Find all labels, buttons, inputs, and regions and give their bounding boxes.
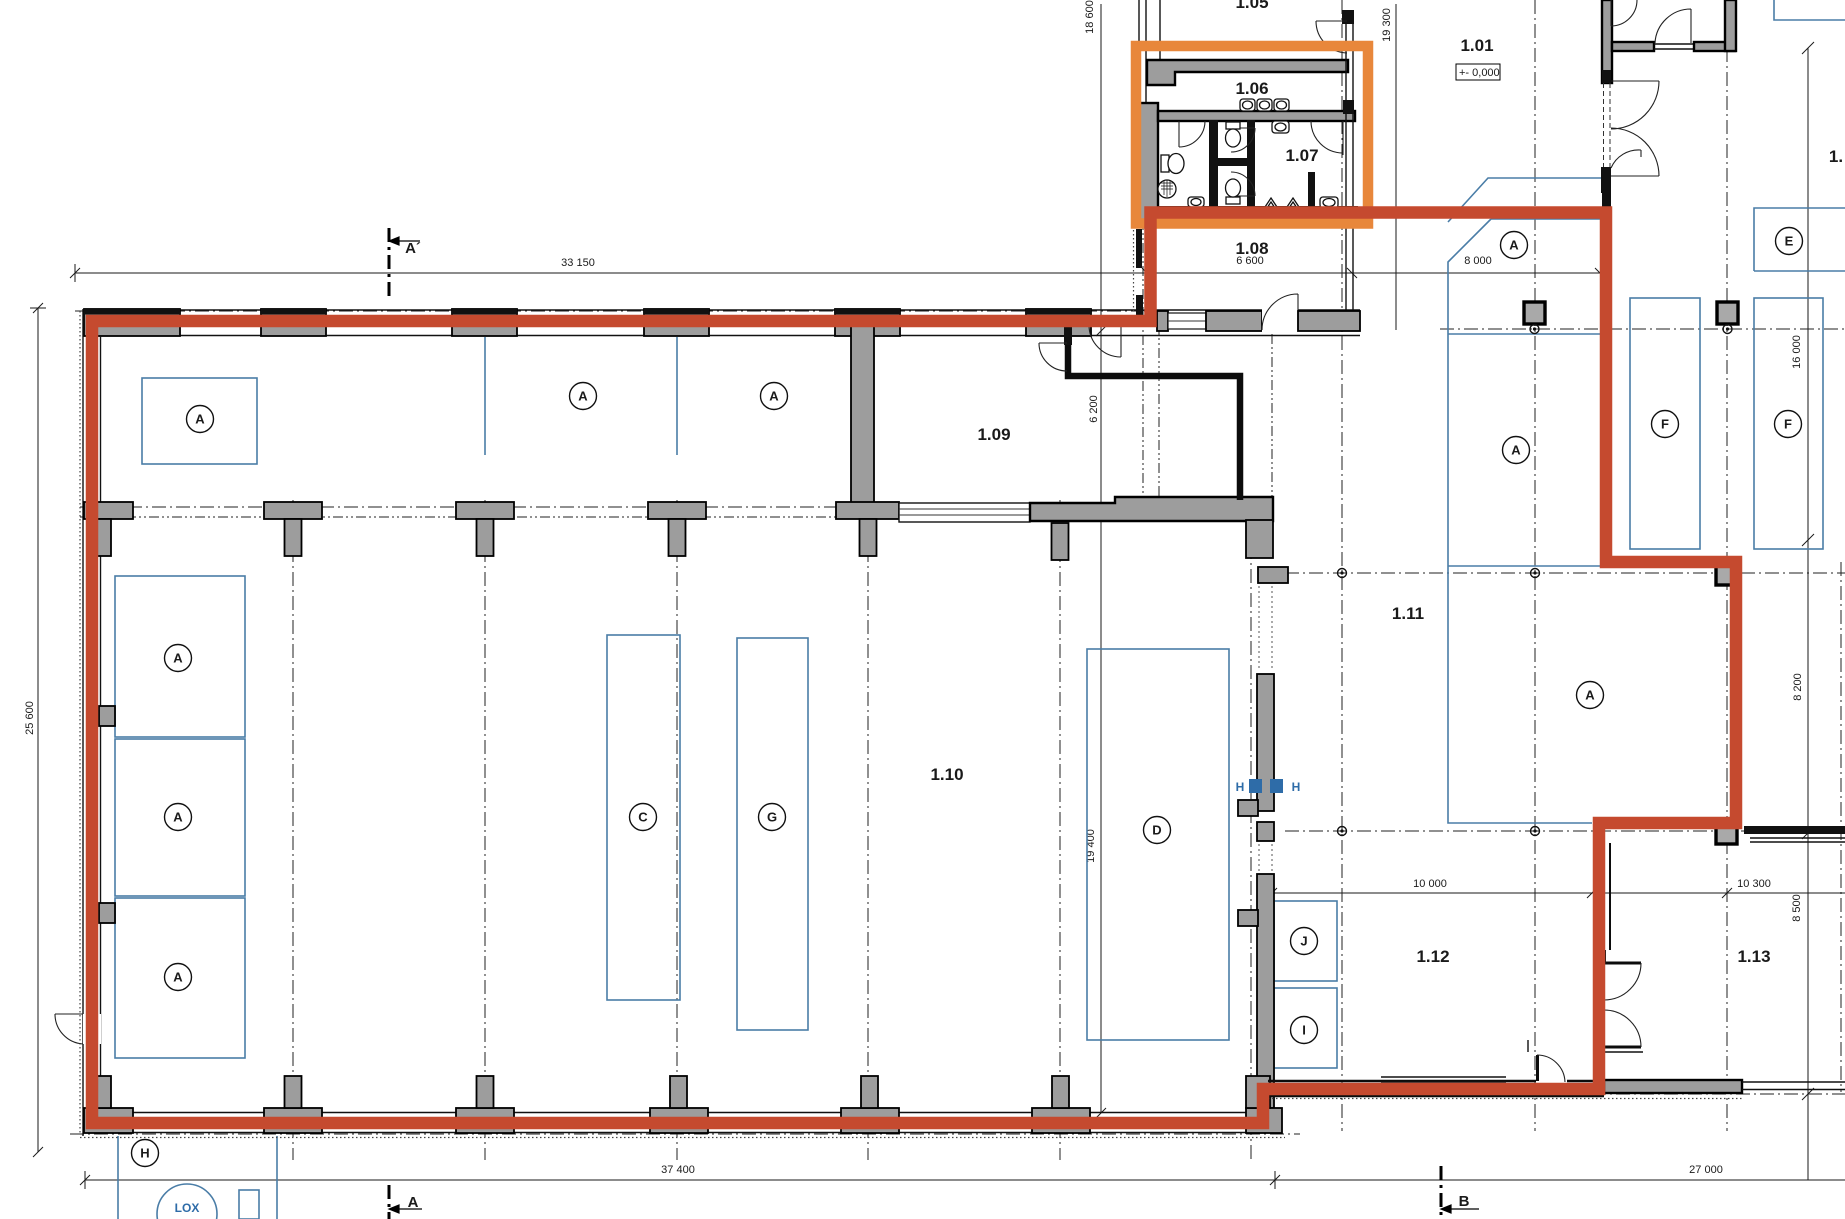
svg-text:A´: A´ — [405, 240, 421, 257]
svg-text:10 300: 10 300 — [1737, 878, 1771, 890]
svg-text:C: C — [638, 810, 648, 825]
svg-text:A: A — [195, 412, 205, 427]
svg-text:1.06: 1.06 — [1235, 79, 1268, 98]
svg-text:A: A — [408, 1194, 419, 1211]
svg-text:A: A — [1509, 238, 1519, 253]
svg-text:A: A — [173, 651, 183, 666]
svg-text:1.: 1. — [1829, 147, 1843, 166]
svg-text:8 000: 8 000 — [1464, 255, 1492, 267]
svg-text:1.09: 1.09 — [977, 425, 1010, 444]
svg-text:1.13: 1.13 — [1737, 947, 1770, 966]
svg-text:J: J — [1300, 934, 1307, 949]
svg-text:B: B — [1459, 1193, 1470, 1210]
svg-text:33 150: 33 150 — [561, 257, 595, 269]
svg-text:H: H — [1236, 780, 1245, 794]
svg-text:I: I — [1302, 1023, 1306, 1038]
svg-text:16 000: 16 000 — [1791, 335, 1803, 369]
svg-text:1.12: 1.12 — [1416, 947, 1449, 966]
svg-text:A: A — [769, 389, 779, 404]
svg-text:8 500: 8 500 — [1791, 894, 1803, 922]
svg-text:8 200: 8 200 — [1792, 673, 1804, 701]
svg-text:A: A — [578, 389, 588, 404]
svg-text:H: H — [140, 1146, 149, 1161]
svg-text:18 600: 18 600 — [1084, 0, 1096, 34]
svg-text:D: D — [1152, 823, 1161, 838]
svg-text:E: E — [1785, 234, 1794, 249]
svg-text:A: A — [173, 970, 183, 985]
svg-text:LOX: LOX — [175, 1201, 200, 1215]
svg-text:A: A — [1511, 443, 1521, 458]
svg-text:1.05: 1.05 — [1235, 0, 1268, 12]
svg-text:1.01: 1.01 — [1460, 36, 1493, 55]
svg-text:6 200: 6 200 — [1088, 395, 1100, 423]
svg-text:27 000: 27 000 — [1689, 1164, 1723, 1176]
svg-text:1.07: 1.07 — [1285, 146, 1318, 165]
svg-text:+- 0,000: +- 0,000 — [1459, 67, 1500, 79]
svg-text:19 300: 19 300 — [1381, 8, 1393, 42]
svg-text:A: A — [1585, 688, 1595, 703]
svg-text:F: F — [1661, 417, 1669, 432]
svg-text:1.08: 1.08 — [1235, 239, 1268, 258]
svg-text:37 400: 37 400 — [661, 1164, 695, 1176]
svg-text:25 600: 25 600 — [24, 701, 36, 735]
svg-text:A: A — [173, 810, 183, 825]
svg-text:F: F — [1784, 417, 1792, 432]
svg-text:10 000: 10 000 — [1413, 878, 1447, 890]
svg-text:G: G — [767, 810, 777, 825]
svg-text:1.11: 1.11 — [1392, 604, 1424, 623]
svg-text:1.10: 1.10 — [930, 765, 963, 784]
svg-text:H: H — [1292, 780, 1301, 794]
